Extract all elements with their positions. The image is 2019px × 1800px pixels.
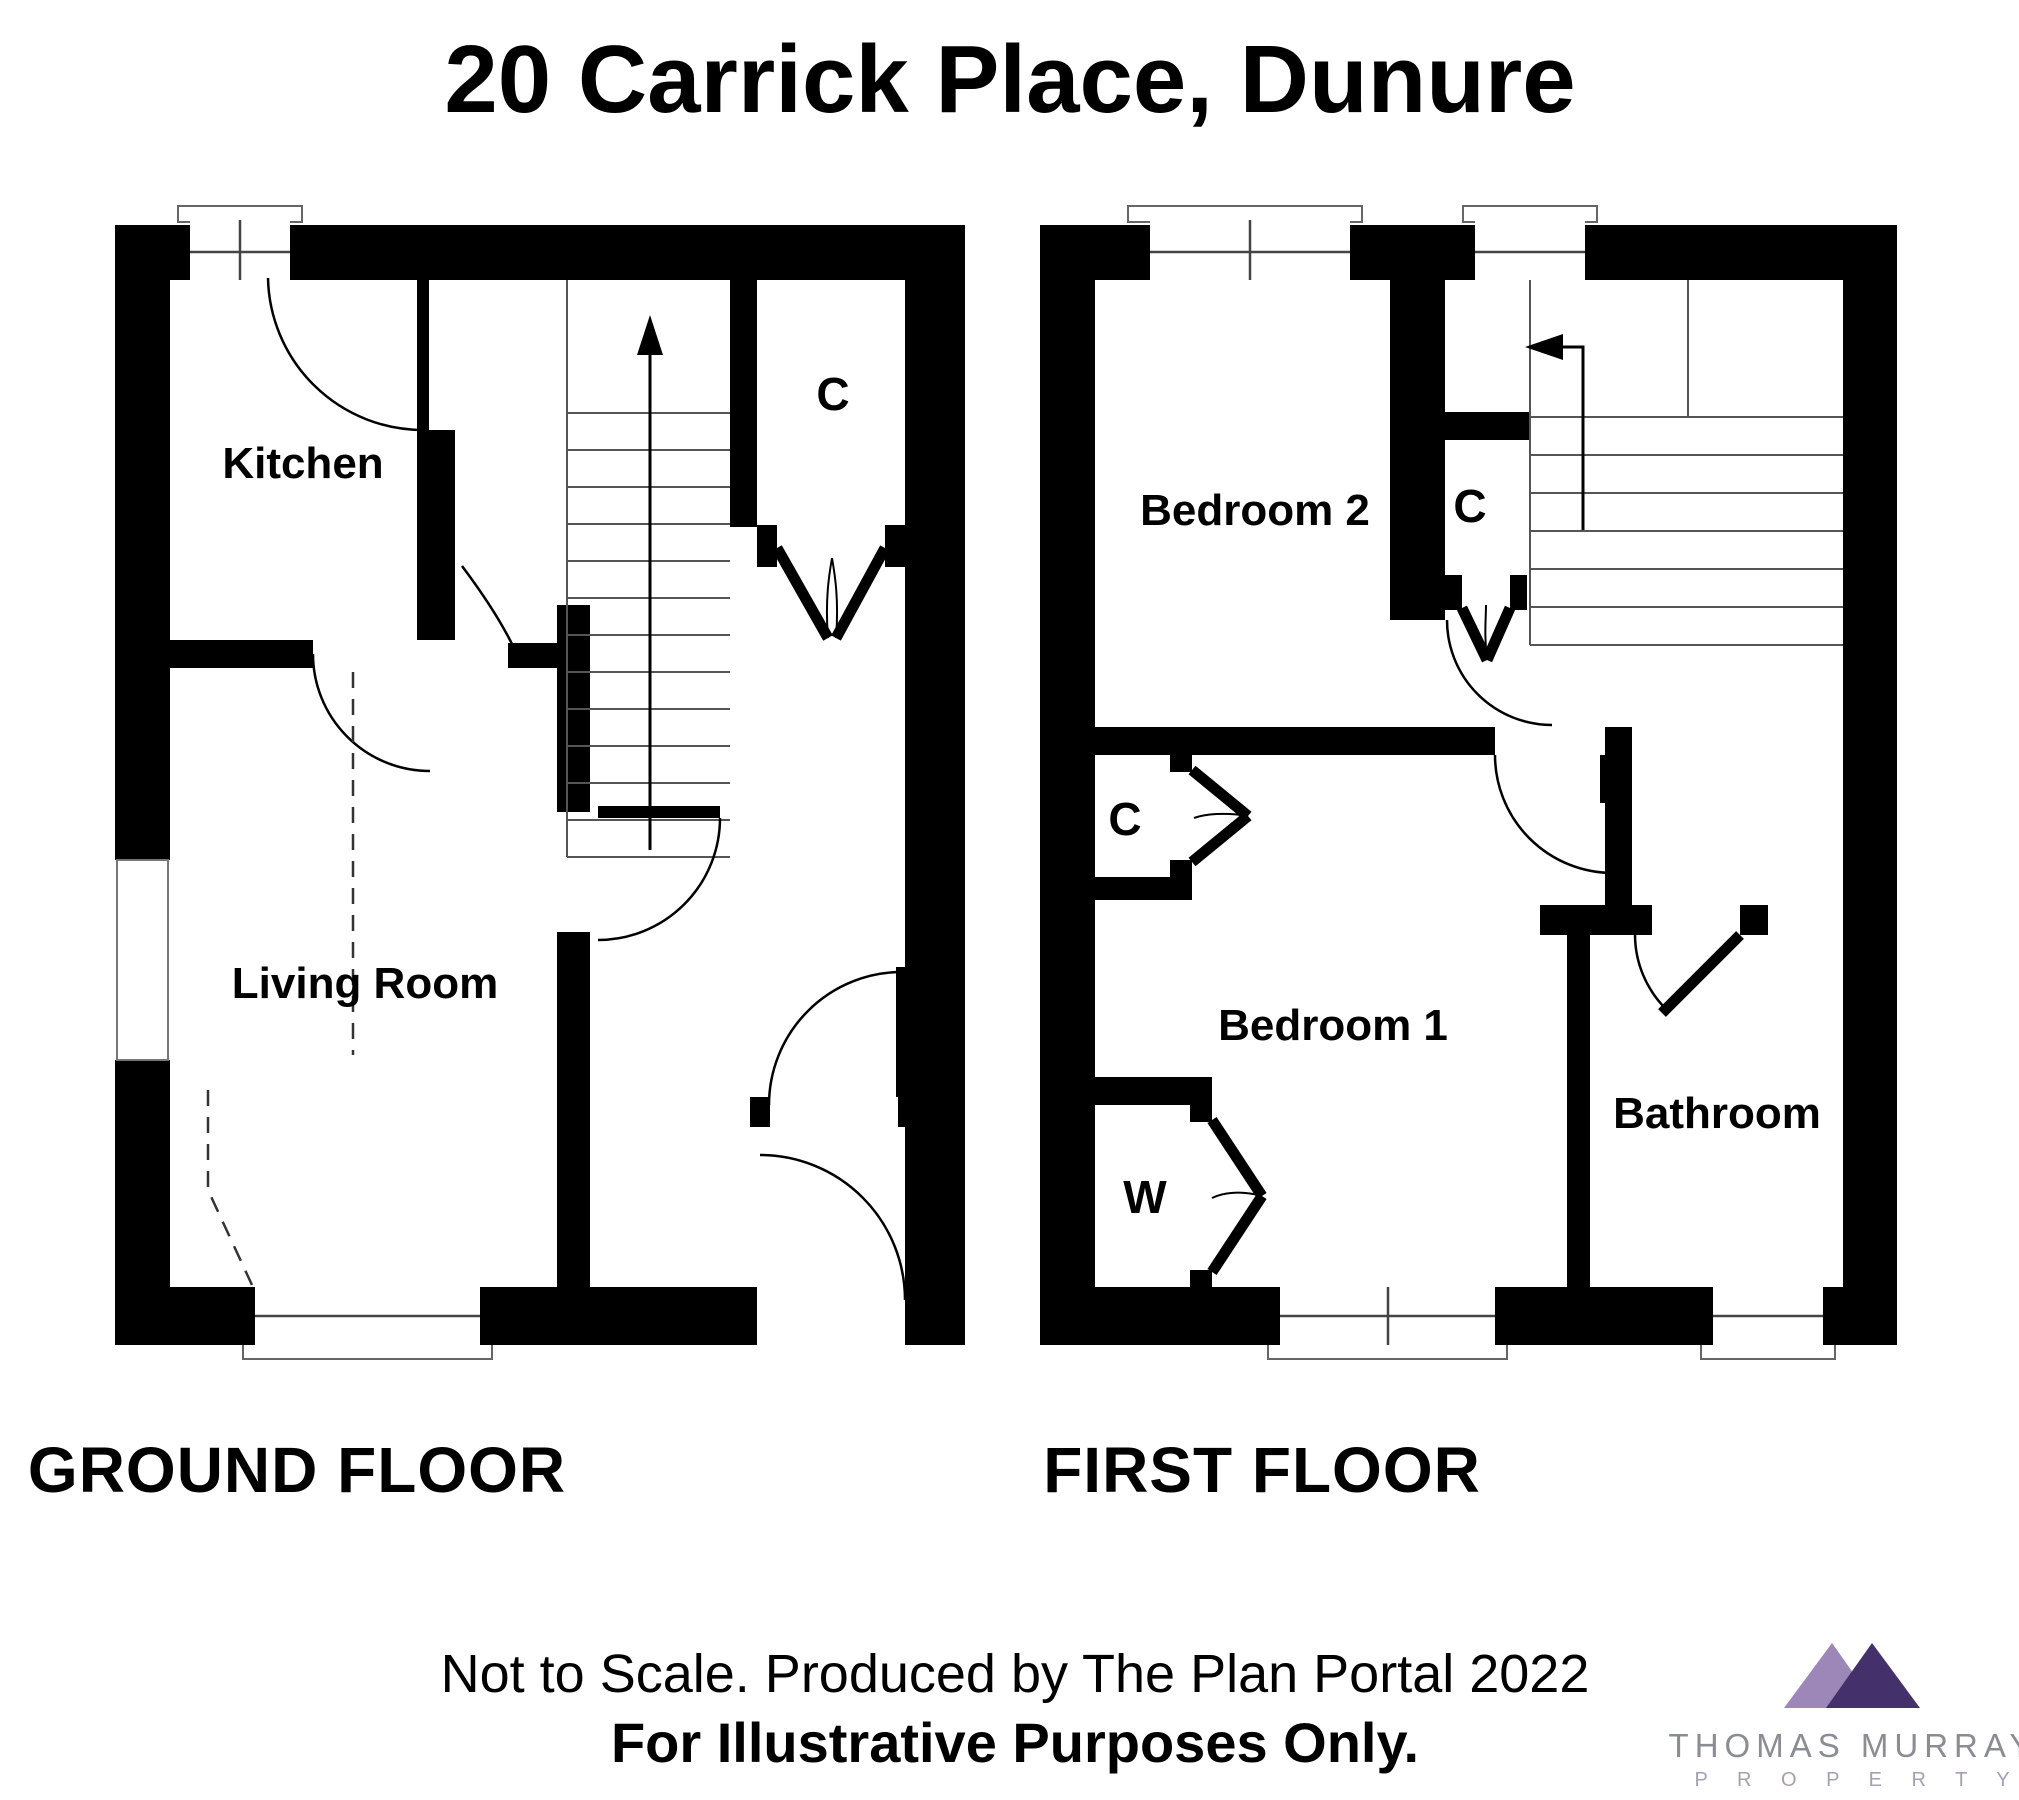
ground-floor-windows bbox=[178, 206, 492, 1359]
first-floor-caption: FIRST FLOOR bbox=[1043, 1434, 1481, 1506]
bedroom2-label: Bedroom 2 bbox=[1140, 486, 1370, 535]
thomas-murray-logo: THOMAS MURRAY P R O P E R T Y bbox=[1669, 1643, 2019, 1791]
ground-closet-label: C bbox=[816, 368, 849, 420]
floorplan-page: 20 Carrick Place, Dunure bbox=[0, 0, 2019, 1800]
bedroom1-label: Bedroom 1 bbox=[1218, 1001, 1448, 1050]
first-floor-plan: Bedroom 2 Bedroom 1 Bathroom C C W bbox=[1040, 206, 1897, 1359]
wardrobe-label: W bbox=[1123, 1171, 1167, 1223]
living-room-label: Living Room bbox=[232, 959, 498, 1008]
kitchen-label: Kitchen bbox=[222, 439, 383, 488]
ground-floor-caption: GROUND FLOOR bbox=[28, 1434, 566, 1506]
page-title: 20 Carrick Place, Dunure bbox=[444, 26, 1575, 133]
first-floor-walls bbox=[1040, 225, 1897, 1345]
first-floor-doors bbox=[1447, 620, 1740, 1013]
stairs-up-arrow-icon bbox=[637, 315, 663, 355]
bathroom-label: Bathroom bbox=[1613, 1089, 1821, 1138]
first-floor-bifolds bbox=[1192, 605, 1510, 1272]
footer-disclaimer: Not to Scale. Produced by The Plan Porta… bbox=[441, 1644, 1590, 1704]
first-floor-window-sills bbox=[1128, 206, 1835, 1359]
first-floor-stairs bbox=[1525, 280, 1843, 645]
ground-floor-closet-bifold bbox=[777, 548, 885, 638]
footer-illustrative: For Illustrative Purposes Only. bbox=[611, 1711, 1419, 1774]
ground-floor-window-glass bbox=[190, 220, 480, 1345]
floorplan-canvas: 20 Carrick Place, Dunure bbox=[0, 0, 2019, 1800]
ground-floor-plan: Kitchen Living Room C bbox=[115, 206, 965, 1359]
bedroom1-closet-label: C bbox=[1108, 793, 1141, 845]
landing-closet-label: C bbox=[1453, 480, 1486, 532]
logo-name-text: THOMAS MURRAY bbox=[1669, 1727, 2019, 1764]
ground-floor-stairs bbox=[567, 280, 730, 857]
logo-subtitle-text: P R O P E R T Y bbox=[1694, 1769, 2019, 1791]
